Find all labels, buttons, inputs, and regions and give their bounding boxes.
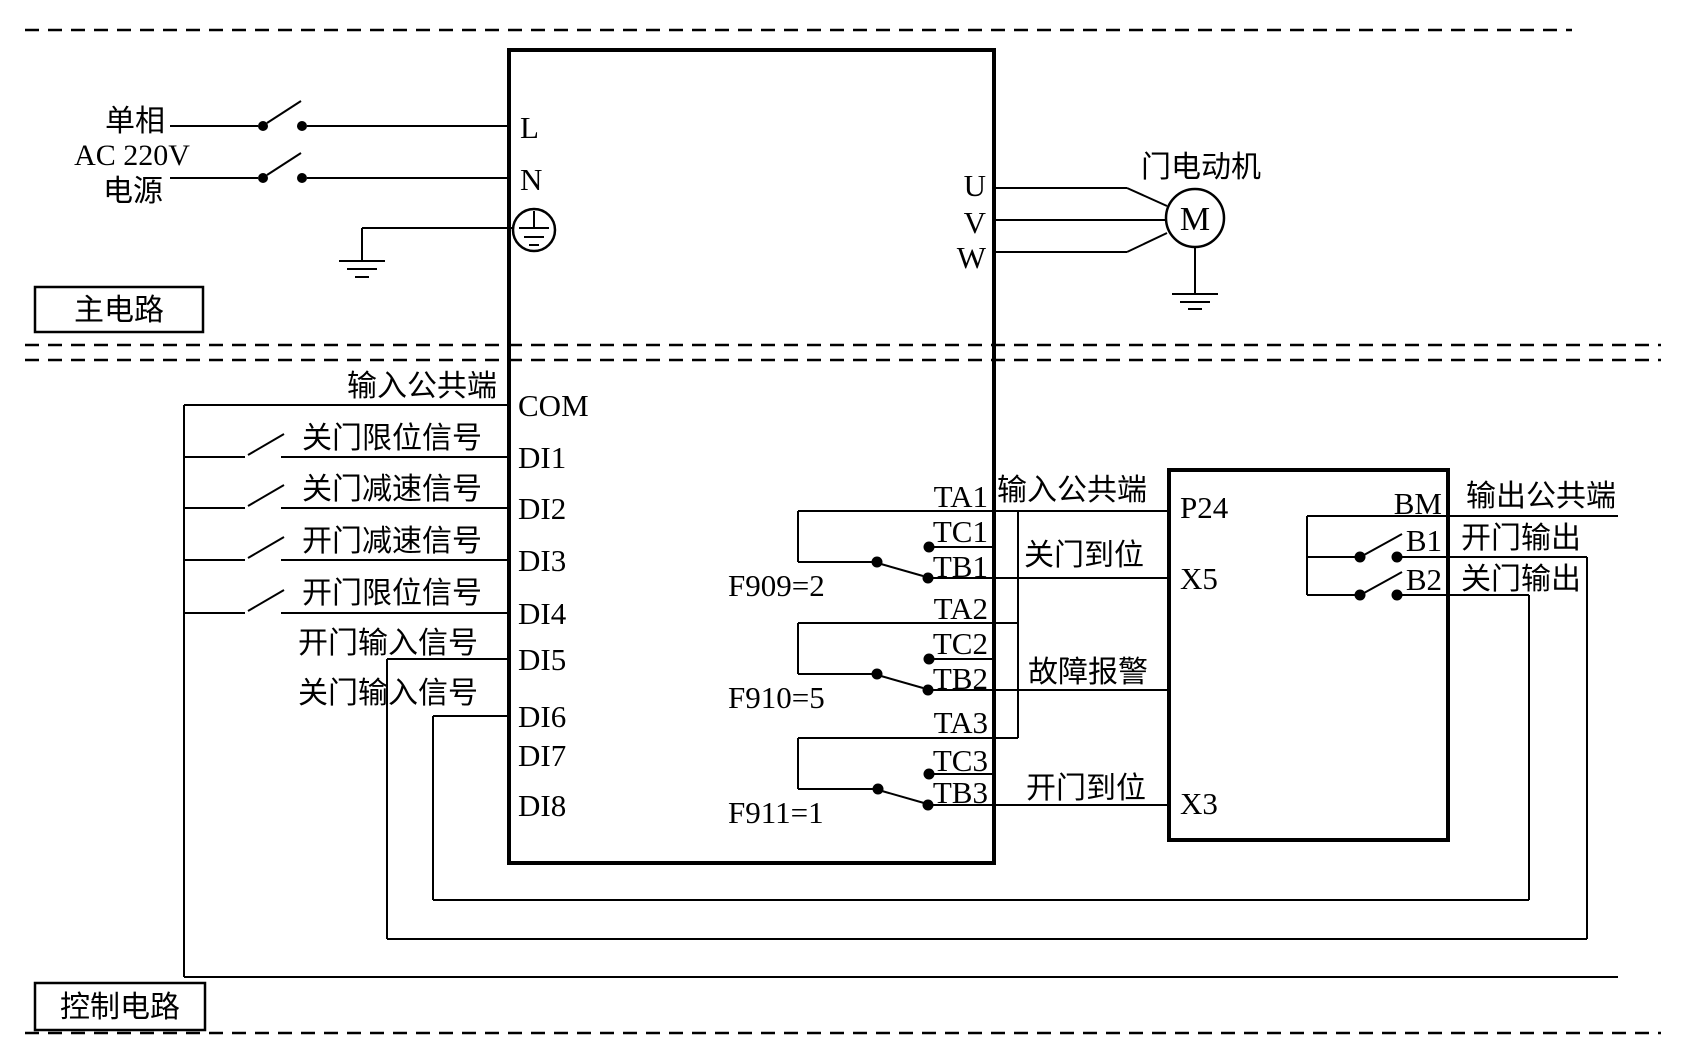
tb3-contact: [923, 800, 934, 811]
phase-n-wire: [170, 153, 509, 183]
input-common-label-right: 输入公共端: [997, 474, 1147, 507]
terminal-DI8: DI8: [518, 788, 566, 823]
main-circuit-label: 主电路: [74, 294, 164, 327]
b1-out-contact: [1392, 552, 1403, 563]
terminal-V: V: [964, 205, 987, 240]
terminal-TB3: TB3: [933, 775, 988, 810]
terminal-X3: X3: [1180, 786, 1218, 821]
w-wire-slant: [1127, 233, 1167, 252]
terminal-TB2: TB2: [933, 661, 988, 696]
terminal-U: U: [964, 168, 986, 203]
relay1-pole-contact: [872, 557, 883, 568]
di4-switch-blade: [248, 590, 284, 611]
close-done-label: 关门到位: [1024, 539, 1144, 572]
elevator-door-wiring-diagram: 主电路 控制电路 单相 AC 220V 电源 L N U: [0, 0, 1686, 1038]
b2-pole-contact: [1355, 590, 1366, 601]
relay1-blade: [881, 564, 923, 576]
relay2-blade: [881, 676, 923, 688]
close-output-label: 关门输出: [1461, 563, 1581, 596]
open-done-label: 开门到位: [1026, 772, 1146, 805]
close-limit-label: 关门限位信号: [302, 422, 482, 455]
l-switch-blade: [267, 101, 301, 123]
l-switch-contact-left: [258, 121, 268, 131]
terminal-TA3: TA3: [934, 705, 988, 740]
open-decel-label: 开门减速信号: [302, 525, 482, 558]
terminal-DI1: DI1: [518, 440, 566, 475]
terminal-L: L: [520, 110, 539, 145]
input-common-label-left: 输入公共端: [347, 370, 497, 403]
door-motor: 门电动机 M: [1141, 151, 1261, 309]
terminal-DI3: DI3: [518, 543, 566, 578]
close-decel-label: 关门减速信号: [302, 473, 482, 506]
terminal-BM: BM: [1394, 486, 1442, 521]
output-common-label: 输出公共端: [1466, 480, 1616, 513]
terminal-N: N: [520, 162, 542, 197]
terminal-DI4: DI4: [518, 596, 567, 631]
motor-label: 门电动机: [1141, 151, 1261, 184]
relay2-pole-contact: [872, 669, 883, 680]
n-switch-blade: [267, 153, 301, 175]
terminal-TC2: TC2: [933, 626, 988, 661]
relay3-param: F911=1: [728, 795, 824, 830]
relay-group-3: TA3 TC3 TB3 F911=1: [728, 705, 1169, 830]
terminal-COM: COM: [518, 388, 589, 423]
open-limit-label: 开门限位信号: [302, 577, 482, 610]
terminal-TA2: TA2: [934, 591, 988, 626]
fault-alarm-label: 故障报警: [1028, 656, 1148, 689]
n-switch-contact-left: [258, 173, 268, 183]
power-source-label: 单相 AC 220V 电源: [74, 105, 190, 208]
u-wire-slant: [1127, 188, 1167, 206]
di2-switch-blade: [248, 485, 284, 506]
open-input-label: 开门输入信号: [298, 627, 478, 660]
relay1-param: F909=2: [728, 568, 825, 603]
inverter-box: [509, 50, 994, 863]
tb2-contact: [923, 685, 934, 696]
power-label-line3: 电源: [103, 175, 163, 208]
l-switch-contact-right: [297, 121, 307, 131]
relay3-blade: [882, 791, 924, 803]
n-switch-contact-right: [297, 173, 307, 183]
power-label-line1: 单相: [105, 105, 165, 138]
motor-wires: [994, 188, 1167, 252]
terminal-DI6: DI6: [518, 699, 566, 734]
di3-switch-blade: [248, 537, 284, 558]
control-circuit-label: 控制电路: [60, 991, 180, 1024]
power-label-line2: AC 220V: [74, 139, 190, 172]
relay2-param: F910=5: [728, 680, 825, 715]
terminal-TC3: TC3: [933, 743, 988, 778]
terminal-B2: B2: [1406, 562, 1442, 597]
earth-connection: [339, 209, 555, 277]
di1-switch-blade: [248, 434, 284, 455]
b2-out-contact: [1392, 590, 1403, 601]
terminal-DI2: DI2: [518, 491, 566, 526]
terminal-TA1: TA1: [934, 479, 988, 514]
b1-pole-contact: [1355, 552, 1366, 563]
close-input-label: 关门输入信号: [298, 677, 478, 710]
terminal-DI7: DI7: [518, 738, 566, 773]
open-output-label: 开门输出: [1461, 522, 1581, 555]
terminal-DI5: DI5: [518, 642, 566, 677]
relay3-pole-contact: [873, 784, 884, 795]
phase-l-wire: [170, 101, 509, 131]
diagram-canvas: 主电路 控制电路 单相 AC 220V 电源 L N U: [0, 0, 1686, 1038]
tb1-contact: [923, 573, 934, 584]
terminal-X5: X5: [1180, 561, 1218, 596]
terminal-W: W: [957, 240, 987, 275]
terminal-TC1: TC1: [933, 514, 988, 549]
motor-symbol: M: [1180, 201, 1210, 238]
terminal-TB1: TB1: [933, 549, 988, 584]
relay-group-2: TA2 TC2 TB2 F910=5: [728, 591, 1169, 715]
terminal-P24: P24: [1180, 490, 1229, 525]
terminal-B1: B1: [1406, 523, 1442, 558]
